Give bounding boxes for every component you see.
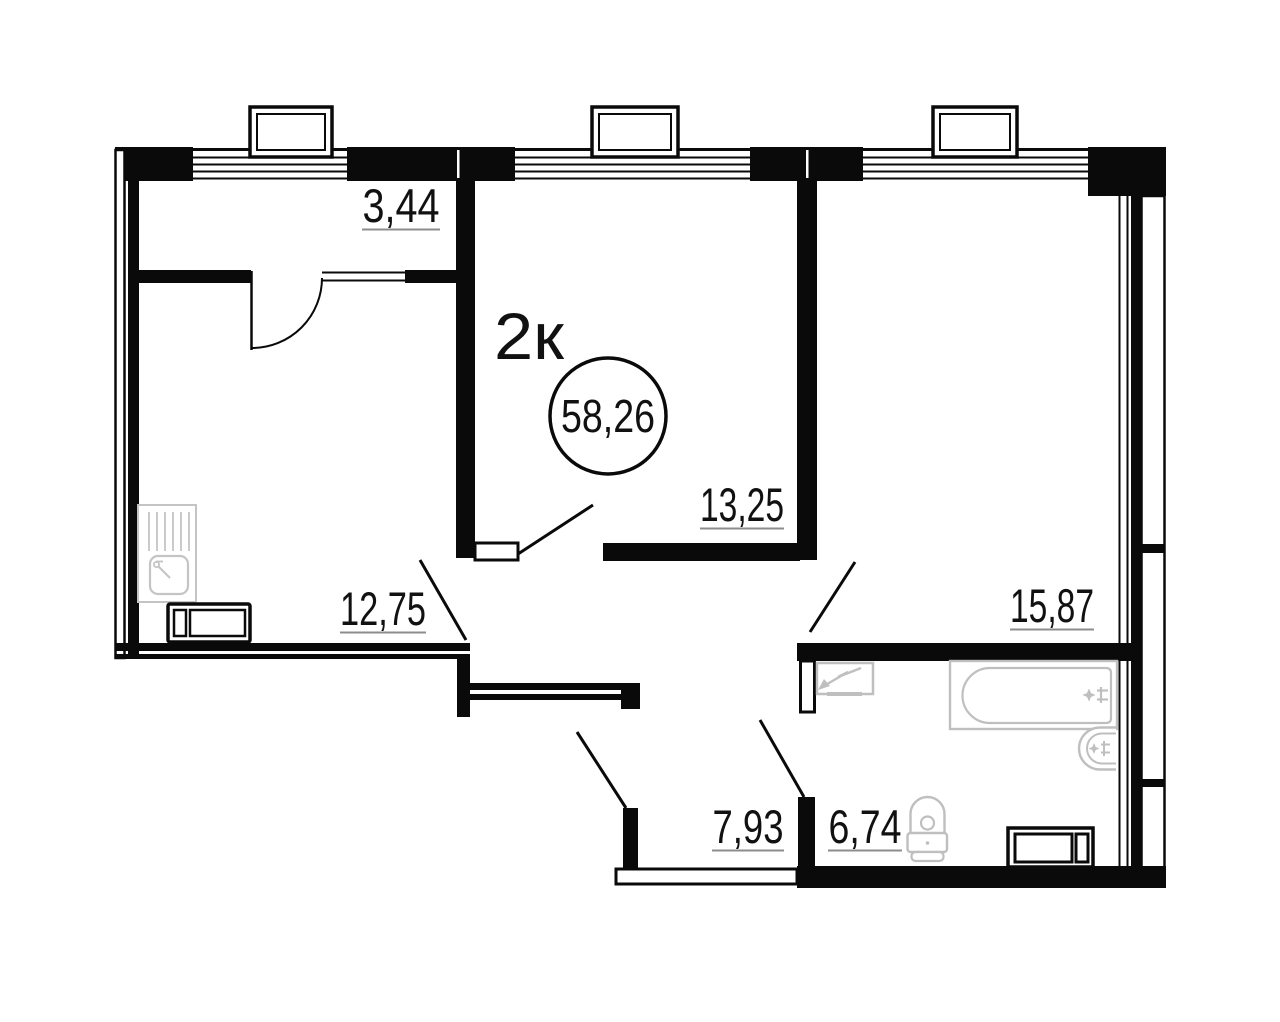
windows (193, 158, 1088, 179)
bedroom-left-wall (456, 178, 475, 558)
total-area-value: 58,26 (561, 390, 655, 442)
room-area-label: 7,93 (713, 800, 784, 853)
door-jamb (475, 543, 518, 560)
bedroom-bottom-wall (603, 543, 800, 561)
kitchen-bottom-wall (115, 643, 470, 651)
bathtub-icon (950, 661, 1117, 729)
room-area-label: 15,87 (1010, 579, 1094, 632)
door-swing-icon (760, 720, 804, 797)
kitchen-bottom-wall-inner (115, 654, 470, 659)
pier-joint (457, 150, 460, 181)
window-icon (322, 273, 405, 281)
room-area-label: 12,75 (340, 582, 426, 635)
electrical-panel-icon (817, 663, 873, 694)
room-area-label: 3,44 (363, 179, 440, 232)
wall-pier (115, 147, 193, 181)
door-swing-icon (518, 505, 593, 554)
door-swing-icon (810, 562, 855, 632)
pier-joint (806, 150, 809, 181)
washbasin-icon (1079, 728, 1116, 770)
left-wall-outer (116, 150, 125, 658)
right-wall-tie (1141, 779, 1165, 787)
window-icon (863, 158, 1088, 179)
room-area-label: 6,74 (829, 800, 902, 853)
right-wall-inner (1131, 178, 1141, 878)
door-swing-icon (577, 732, 626, 808)
toilet-icon (908, 797, 948, 861)
right-wall-outer (1142, 196, 1165, 878)
door-jamb (623, 808, 638, 868)
door-jamb (798, 797, 815, 866)
living-left-wall (797, 178, 817, 560)
apartment-type-label: 2к (494, 299, 565, 373)
washing-machine-icon (1008, 828, 1093, 867)
right-wall-tie (1141, 544, 1165, 553)
bathroom-bottom-wall (797, 866, 1166, 888)
hall-bottom-wall (616, 869, 797, 884)
door-swing-icon (420, 560, 466, 640)
vent-duct-icon (250, 107, 332, 157)
wall-pier (347, 147, 515, 181)
floor-plan: 3,44 2к 58,26 13,25 12,75 15,87 7,93 6,7… (0, 0, 1280, 1022)
window-icon (193, 158, 347, 179)
room-area-label: 13,25 (700, 478, 784, 531)
corridor-wall (470, 694, 640, 700)
loggia-partition (405, 270, 456, 283)
stove-cabinet-icon (168, 604, 250, 642)
vent-duct-icon (933, 107, 1017, 157)
vent-duct-icon (592, 107, 678, 157)
corridor-wall-cap (621, 690, 640, 709)
kitchen-sink-icon (138, 505, 196, 602)
door-swing-icon (252, 271, 323, 350)
loggia-partition (139, 270, 251, 283)
outer-walls (115, 147, 1166, 888)
bathroom-top-wall (797, 643, 1131, 661)
window-icon (515, 158, 750, 179)
interior-walls (139, 178, 1131, 868)
door-jamb (457, 658, 470, 717)
right-wall-tie (1141, 187, 1165, 196)
corridor-wall (470, 683, 640, 690)
floor-plan-page: 3,44 2к 58,26 13,25 12,75 15,87 7,93 6,7… (0, 0, 1280, 1022)
door-jamb (801, 661, 815, 712)
